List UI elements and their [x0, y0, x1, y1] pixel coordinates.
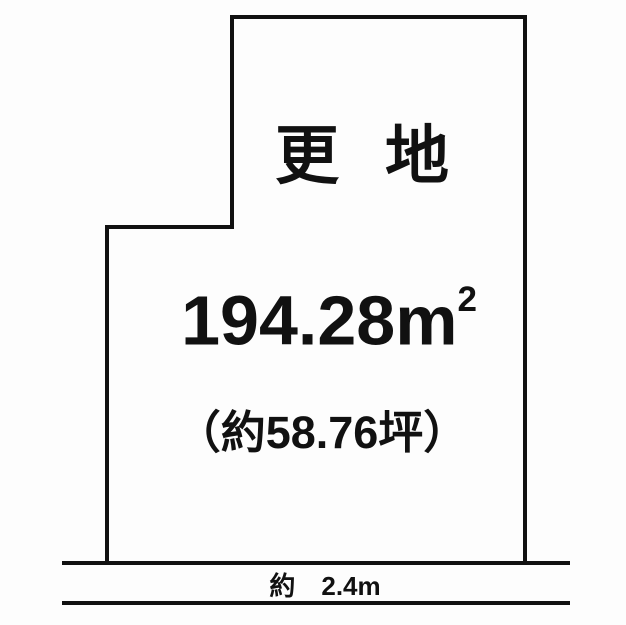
land-area-sqm: 194.28m2 [0, 282, 626, 355]
road-width-label: 約 2.4m [0, 573, 626, 599]
land-plot-diagram: 更地 194.28m2 （約58.76坪） 約 2.4m [0, 0, 626, 625]
land-area-tsubo-label: （約58.76坪） [0, 410, 626, 455]
land-status-label: 更地 [235, 124, 535, 188]
land-area-value: 194.28 [181, 281, 395, 359]
land-area-unit: m [395, 281, 457, 359]
land-area-unit-superscript: 2 [457, 280, 476, 319]
